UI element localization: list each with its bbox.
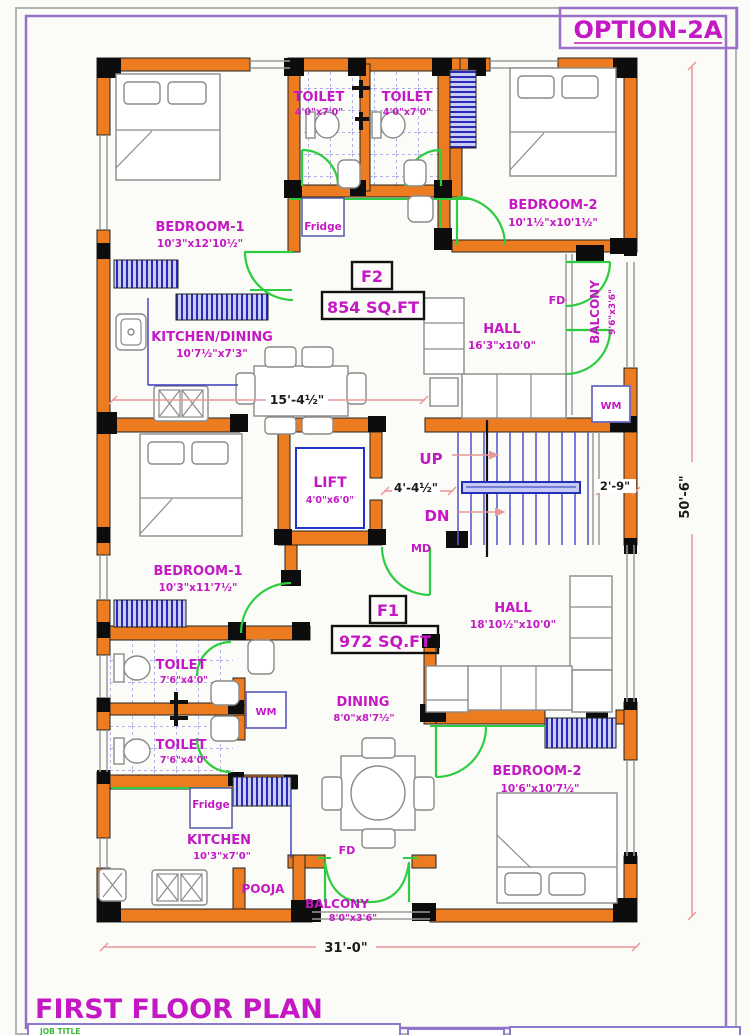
f2-area: 854 SQ.FT [327, 298, 419, 317]
bed-f1-bedroom1 [140, 434, 242, 536]
f2-kitchen-dims: 10'7½"x7'3" [176, 348, 248, 360]
bed-f1-bedroom2 [497, 793, 617, 903]
f1-area: 972 SQ.FT [339, 632, 431, 651]
f2-fd-label: FD [549, 294, 566, 307]
f2-balcony-dims: 9'6"x3'6" [608, 289, 618, 335]
f2-bedroom1-door [245, 252, 293, 300]
window-bedroom1-f1 [114, 600, 186, 627]
title-block-cell-1 [28, 1024, 400, 1035]
f1-toilet1-dims: 7'6"x4'0" [160, 675, 208, 686]
f1-balcony-dims: 8'0"x3'6" [329, 913, 377, 924]
kitchen-sink-f1 [99, 869, 126, 901]
f2-balcony-name: BALCONY [588, 280, 602, 344]
dim-stair-flight: 4'-4½" [394, 481, 438, 495]
f1-bedroom2-door [436, 727, 486, 777]
f1-id: F1 [377, 601, 399, 620]
right-wall-windows [627, 262, 634, 856]
f2-bedroom1-dims: 10'3"x12'10½" [157, 238, 243, 250]
dim-stair-landing: 2'-9" [600, 479, 630, 493]
drawing-sheet: OPTION-2A [0, 0, 750, 1035]
f2-hall-dims: 16'3"x10'0" [468, 340, 536, 352]
f2-kitchen-name: KITCHEN/DINING [151, 330, 273, 345]
f1-hall-name: HALL [494, 601, 532, 616]
dim-height: 50'-6" [678, 475, 693, 518]
sofa-f2-hall [424, 298, 566, 418]
dim-width: 31'-0" [324, 941, 367, 956]
floor-plan-svg: OPTION-2A [0, 0, 750, 1035]
f2-bedroom2-name: BEDROOM-2 [508, 198, 597, 213]
fridge-label-f2: Fridge [304, 221, 341, 233]
dn-label: DN [424, 507, 449, 525]
f1-kitchen-name: KITCHEN [187, 833, 251, 848]
lift-label: LIFT [313, 475, 347, 491]
f2-toilet2-dims: 4'0"x7'0" [383, 107, 431, 118]
f1-bedroom1-dims: 10'3"x11'7½" [159, 582, 238, 594]
balcony-f2-partition [566, 254, 572, 415]
up-label: UP [419, 450, 442, 468]
f1-balcony-name: BALCONY [305, 897, 369, 911]
sofa-f1-hall [426, 576, 612, 712]
option-title-box: OPTION-2A [560, 8, 737, 48]
f1-toilet2-name: TOILET [156, 738, 207, 753]
window-kitchen-f2-a [114, 260, 178, 288]
stove-f1 [152, 870, 207, 905]
f2-hall-name: HALL [483, 322, 521, 337]
f1-dining-dims: 8'0"x8'7½" [333, 713, 394, 724]
window-bedroom2-f1 [545, 718, 616, 748]
job-title-label: JOB TITLE [39, 1027, 80, 1035]
f2-toilet1-dims: 4'0"x7'0" [295, 107, 343, 118]
wm-label-f2: WM [601, 401, 622, 412]
f2-bedroom2-door [457, 197, 505, 245]
f2-bedroom1-name: BEDROOM-1 [155, 220, 244, 235]
wc-f1-toilet2 [114, 738, 150, 764]
f2-toilet1-name: TOILET [294, 90, 345, 105]
f2-bedroom2-dims: 10'1½"x10'1½" [508, 217, 598, 229]
window-toilet2-side [450, 70, 476, 148]
f1-bedroom2-name: BEDROOM-2 [492, 764, 581, 779]
bed-f2-bedroom2 [510, 68, 616, 176]
f1-balcony-french-doors [325, 862, 409, 902]
window-kitchen-f2-b [176, 294, 268, 320]
option-label: OPTION-2A [573, 16, 722, 44]
wm-label-f1: WM [256, 707, 277, 718]
dining-set-f1 [322, 738, 434, 848]
f2-toilet2-name: TOILET [382, 90, 433, 105]
f1-toilet1-name: TOILET [156, 658, 207, 673]
side-table [430, 378, 458, 406]
f1-dining-name: DINING [337, 695, 390, 710]
kitchen-sink-f2 [116, 314, 146, 350]
bed-f2-bedroom1 [116, 74, 220, 180]
md-label: MD [411, 542, 431, 555]
f1-pooja-label: POOJA [242, 882, 286, 896]
plan-title: FIRST FLOOR PLAN [35, 994, 323, 1025]
wc-f1-toilet1 [114, 654, 150, 682]
armchair [426, 666, 468, 712]
f1-fd-label: FD [339, 844, 356, 857]
f1-bedroom1-name: BEDROOM-1 [153, 564, 242, 579]
f1-bedroom2-dims: 10'6"x10'7½" [501, 783, 580, 795]
lift-dims: 4'0"x6'0" [306, 495, 354, 506]
fridge-label-f1: Fridge [192, 799, 229, 811]
title-block: FIRST FLOOR PLAN JOB TITLE [28, 994, 740, 1035]
f2-id: F2 [361, 267, 383, 286]
lift: LIFT 4'0"x6'0" [296, 448, 364, 528]
stove-f2 [154, 386, 208, 421]
f1-kitchen-dims: 10'3"x7'0" [193, 851, 251, 862]
f1-hall-dims: 18'10½"x10'0" [470, 619, 556, 631]
f1-toilet2-dims: 7'6"x4'0" [160, 755, 208, 766]
title-block-cell-3 [510, 1027, 740, 1035]
window-kitchen-f1 [233, 777, 291, 806]
staircase [452, 420, 588, 557]
title-block-cell-2 [408, 1029, 504, 1035]
dim-kitchen-span: 15'-4½" [270, 392, 325, 407]
